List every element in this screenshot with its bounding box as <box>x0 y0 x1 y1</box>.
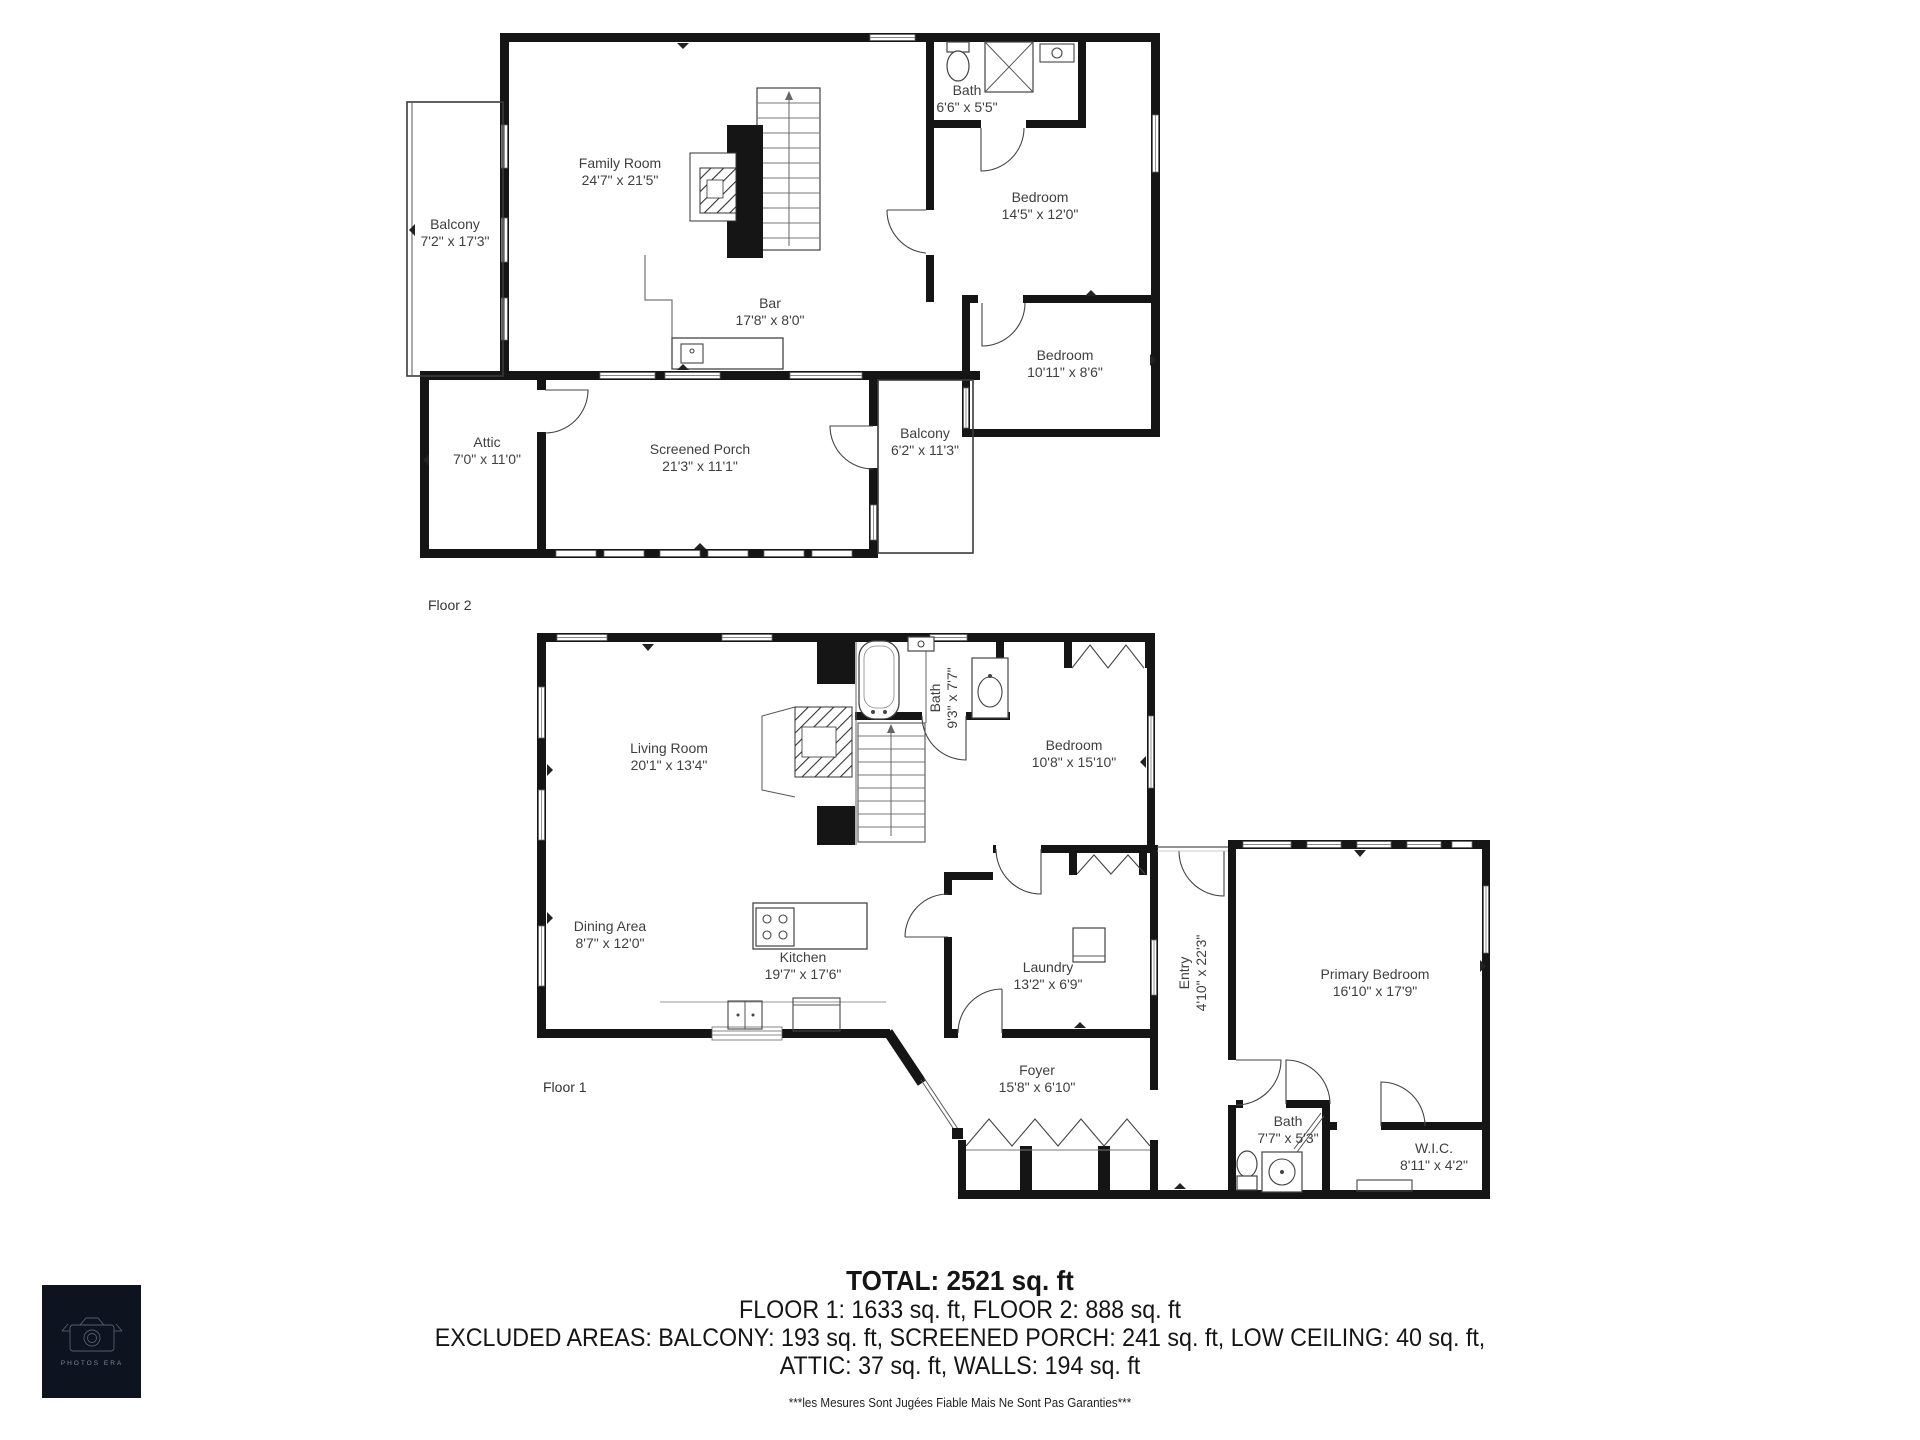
summary-disclaimer: ***les Mesures Sont Jugées Fiable Mais N… <box>67 1396 1853 1410</box>
room-label-laundry: Laundry13'2" x 6'9" <box>1014 959 1083 993</box>
floor1-fireplace-icon <box>762 707 852 797</box>
room-label-bedroom1-f2: Bedroom14'5" x 12'0" <box>1002 189 1079 223</box>
room-label-screened-porch: Screened Porch21'3" x 11'1" <box>650 441 750 475</box>
wic-shelf <box>1357 1180 1412 1191</box>
logo-text: PHOTOS ERA <box>60 1360 123 1367</box>
room-label-primary-bedroom: Primary Bedroom16'10" x 17'9" <box>1321 966 1430 1000</box>
room-label-foyer: Foyer15'8" x 6'10" <box>999 1062 1076 1096</box>
floor2-balcony-right-outline <box>878 380 973 553</box>
photos-era-logo: PHOTOS ERA <box>42 1285 141 1398</box>
floorplan-page: Family Room24'7" x 21'5" Balcony7'2" x 1… <box>0 0 1920 1440</box>
washer-icon <box>1073 928 1105 962</box>
floor1-chimney-bottom <box>817 806 855 845</box>
floor1-ticks <box>547 644 1486 1189</box>
floor1-doors <box>905 716 1425 1126</box>
summary-total: TOTAL: 2521 sq. ft <box>67 1266 1853 1296</box>
summary-floors: FLOOR 1: 1633 sq. ft, FLOOR 2: 888 sq. f… <box>67 1296 1853 1324</box>
floor1-chimney-top <box>817 642 855 684</box>
room-label-balcony-right-f2: Balcony6'2" x 11'3" <box>891 425 959 459</box>
summary-excluded-1: EXCLUDED AREAS: BALCONY: 193 sq. ft, SCR… <box>67 1324 1853 1352</box>
floor2-fireplace-icon <box>690 153 736 221</box>
summary-excluded-2: ATTIC: 37 sq. ft, WALLS: 194 sq. ft <box>67 1352 1853 1380</box>
room-label-bedroom2-f2: Bedroom10'11" x 8'6" <box>1027 347 1103 381</box>
floor2-stairs-icon <box>757 88 820 250</box>
kitchen-counter <box>660 998 886 1031</box>
room-label-bath-f2: Bath6'6" x 5'5" <box>936 82 997 116</box>
area-summary: TOTAL: 2521 sq. ft FLOOR 1: 1633 sq. ft,… <box>67 1266 1853 1410</box>
floor2-tag: Floor 2 <box>428 597 472 613</box>
room-label-attic: Attic7'0" x 11'0" <box>453 434 521 468</box>
kitchen-island-icon <box>753 903 867 949</box>
room-label-balcony-left-f2: Balcony7'2" x 17'3" <box>421 216 490 250</box>
room-label-kitchen: Kitchen19'7" x 17'6" <box>765 949 842 983</box>
room-label-bar: Bar17'8" x 8'0" <box>736 295 805 329</box>
floor1-plan-group <box>537 633 1490 1199</box>
room-label-family-room: Family Room24'7" x 21'5" <box>579 155 661 189</box>
floor1-tag: Floor 1 <box>543 1079 587 1095</box>
room-label-bath-lower: Bath7'7" x 5'3" <box>1257 1113 1318 1147</box>
room-label-bath-upper: Bath9'3" x 7'7" <box>927 667 961 728</box>
room-label-bedroom-f1: Bedroom10'8" x 15'10" <box>1032 737 1117 771</box>
camera-icon: PHOTOS ERA <box>50 1309 134 1375</box>
room-label-dining-area: Dining Area8'7" x 12'0" <box>574 918 646 952</box>
room-label-entry: Entry4'10" x 22'3" <box>1176 935 1210 1012</box>
room-label-living-room: Living Room20'1" x 13'4" <box>630 740 708 774</box>
room-label-wic: W.I.C.8'11" x 4'2" <box>1400 1140 1468 1174</box>
